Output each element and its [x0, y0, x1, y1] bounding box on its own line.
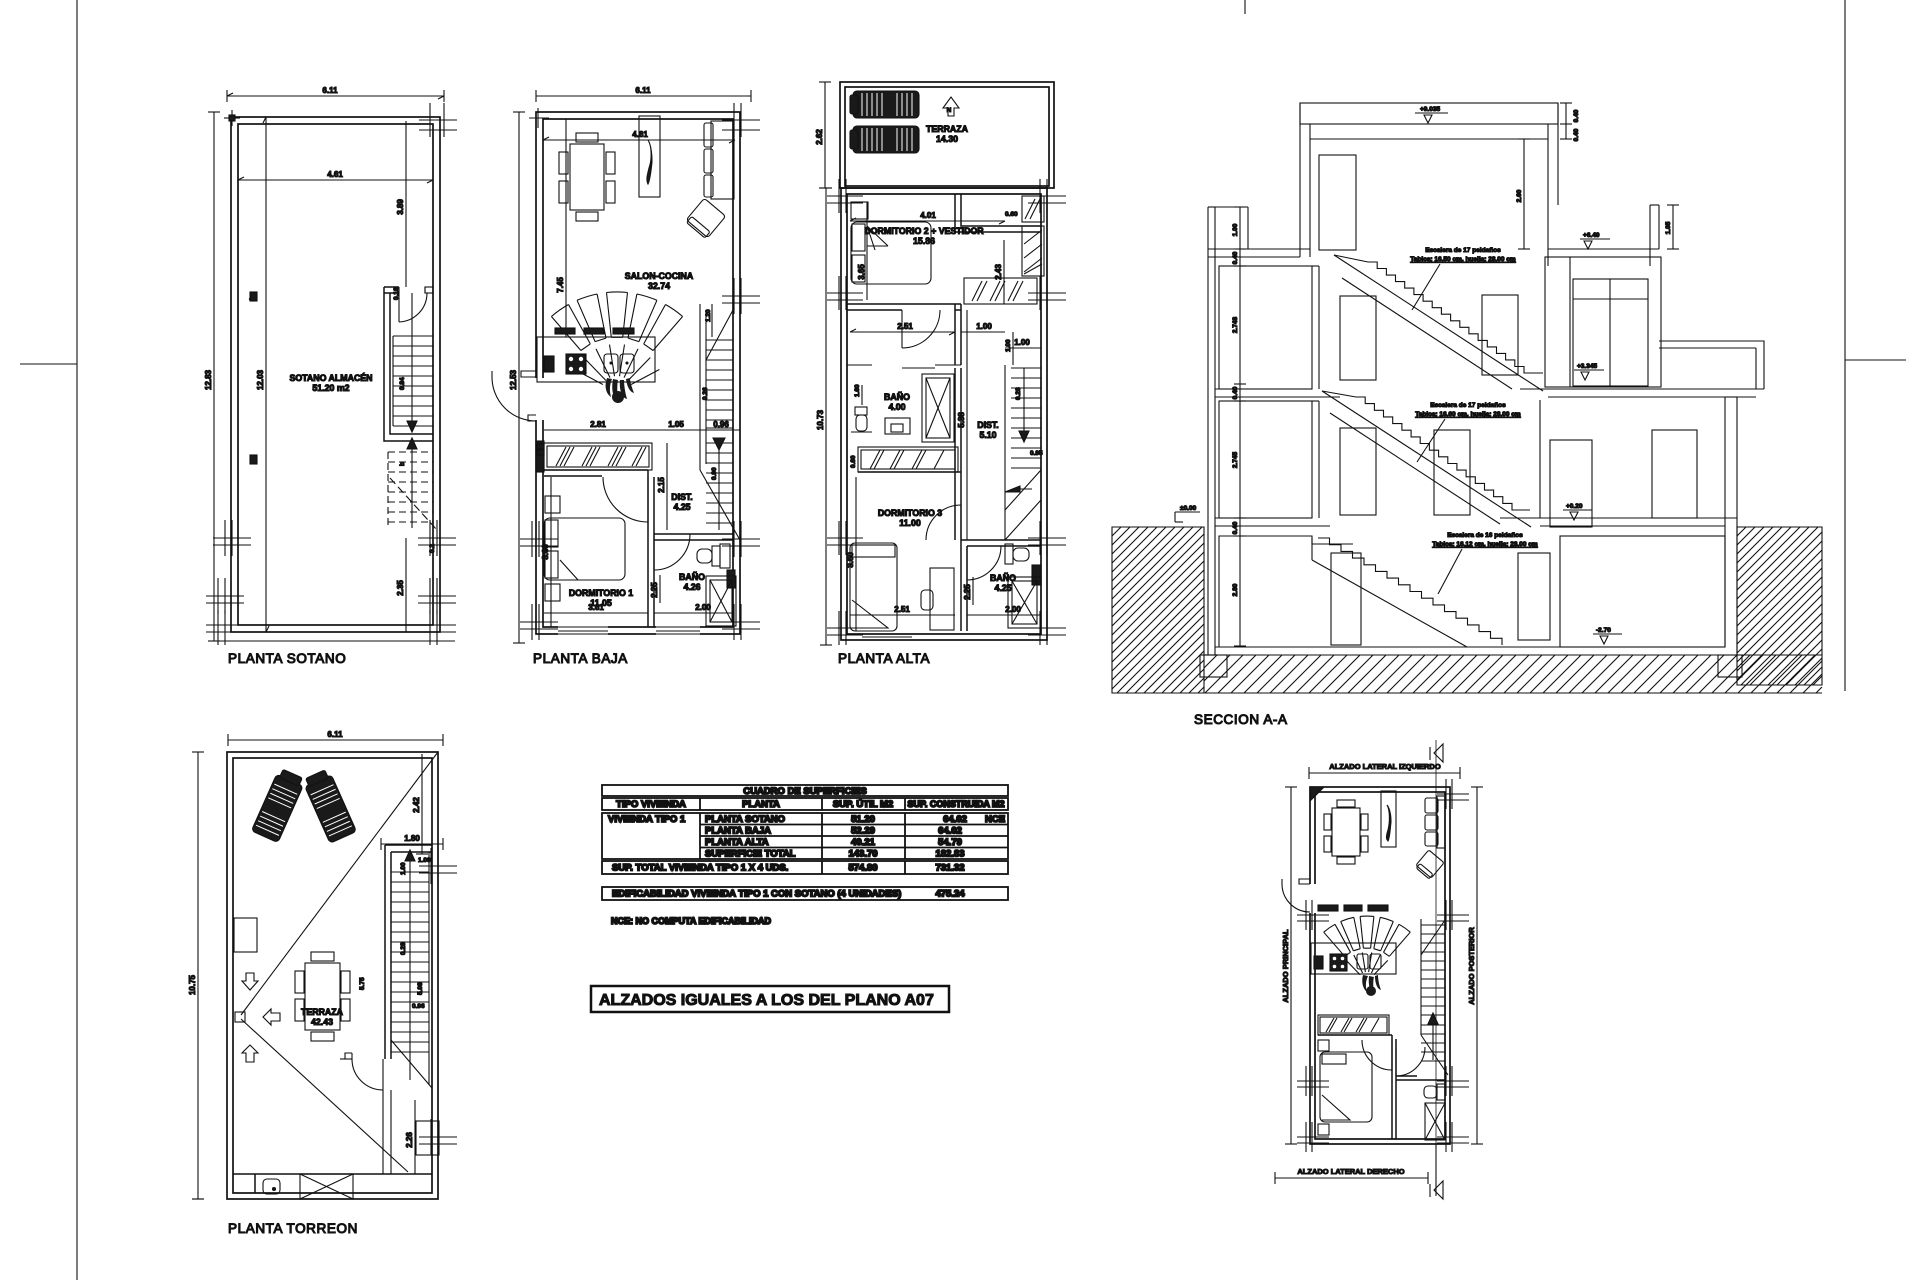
- svg-text:0.90: 0.90: [711, 467, 718, 480]
- svg-text:5.38: 5.38: [957, 412, 966, 428]
- svg-text:2.25: 2.25: [963, 584, 972, 600]
- svg-text:15.86: 15.86: [913, 236, 935, 246]
- svg-text:475.24: 475.24: [935, 889, 965, 900]
- svg-text:10.75: 10.75: [188, 974, 197, 995]
- svg-text:DIST.: DIST.: [671, 492, 693, 502]
- svg-text:1.00: 1.00: [976, 322, 992, 331]
- svg-text:32.74: 32.74: [648, 281, 670, 291]
- svg-text:DORMITORIO 3: DORMITORIO 3: [878, 508, 942, 518]
- svg-text:2.26: 2.26: [405, 1132, 414, 1148]
- svg-text:4.61: 4.61: [632, 130, 648, 139]
- svg-text:-2.70: -2.70: [1596, 627, 1611, 634]
- svg-text:731.32: 731.32: [935, 863, 964, 874]
- svg-text:64.02: 64.02: [938, 826, 962, 837]
- svg-text:6.11: 6.11: [322, 86, 338, 95]
- svg-text:PLANTA SOTANO: PLANTA SOTANO: [228, 651, 346, 666]
- svg-text:TERRAZA: TERRAZA: [301, 1007, 344, 1017]
- svg-text:1.00: 1.00: [1014, 338, 1030, 347]
- svg-text:0.40: 0.40: [1232, 521, 1239, 534]
- svg-text:SUP. TOTAL VIVIENDA TIPO 1 X 4: SUP. TOTAL VIVIENDA TIPO 1 X 4 UDS.: [612, 863, 788, 874]
- svg-text:2.51: 2.51: [897, 322, 913, 331]
- svg-text:6.11: 6.11: [327, 730, 343, 739]
- svg-text:2.745: 2.745: [1232, 451, 1239, 468]
- svg-text:Escalera de 16 peldaños: Escalera de 16 peldaños: [1447, 532, 1523, 539]
- svg-text:5.75: 5.75: [359, 977, 366, 990]
- svg-text:2.00: 2.00: [1005, 605, 1021, 614]
- svg-text:12.83: 12.83: [204, 369, 213, 390]
- svg-text:CUADRO DE SUPERFICIES: CUADRO DE SUPERFICIES: [743, 786, 867, 797]
- svg-text:SALON-COCINA: SALON-COCINA: [625, 271, 694, 281]
- svg-text:1.00: 1.00: [1232, 223, 1239, 236]
- svg-text:NCE: NO COMPUTA EDIFICABILIDA: NCE: NO COMPUTA EDIFICABILIDAD: [611, 916, 771, 926]
- svg-text:52.29: 52.29: [851, 826, 875, 837]
- svg-text:DORMITORIO 1: DORMITORIO 1: [569, 588, 633, 598]
- svg-text:ALZADOS IGUALES A LOS DEL PLAN: ALZADOS IGUALES A LOS DEL PLANO A07: [599, 992, 934, 1009]
- svg-text:Escalera de 17 peldaños: Escalera de 17 peldaños: [1425, 247, 1501, 254]
- svg-text:ALZADO LATERAL IZQUIERDO: ALZADO LATERAL IZQUIERDO: [1329, 762, 1441, 771]
- svg-text:PLANTA BAJA: PLANTA BAJA: [533, 651, 628, 666]
- svg-text:0.2: 0.2: [429, 544, 436, 553]
- svg-text:1.05: 1.05: [668, 420, 684, 429]
- svg-text:51.20 m2: 51.20 m2: [312, 383, 349, 393]
- svg-text:0.40: 0.40: [1232, 251, 1239, 264]
- svg-text:DIST.: DIST.: [977, 420, 999, 430]
- svg-text:ALZADO POSTERIOR: ALZADO POSTERIOR: [1467, 927, 1476, 1005]
- svg-text:0.40: 0.40: [1573, 109, 1580, 122]
- svg-text:TIPO VIVIENDA: TIPO VIVIENDA: [616, 799, 686, 810]
- svg-text:2.81: 2.81: [590, 420, 606, 429]
- svg-text:54.79: 54.79: [938, 837, 962, 848]
- svg-text:0.28: 0.28: [1015, 387, 1022, 400]
- svg-text:3.61: 3.61: [588, 603, 604, 612]
- svg-text:Escalera de 17 peldaños: Escalera de 17 peldaños: [1430, 402, 1506, 409]
- svg-text:4.26: 4.26: [683, 582, 700, 592]
- svg-text:2.62: 2.62: [815, 129, 824, 145]
- svg-text:PLANTA SOTANO: PLANTA SOTANO: [705, 814, 785, 825]
- svg-text:12.53: 12.53: [509, 369, 518, 390]
- svg-text:±0.00: ±0.00: [1180, 505, 1197, 512]
- svg-text:1.00: 1.00: [1005, 339, 1012, 352]
- svg-text:10.73: 10.73: [816, 409, 825, 430]
- svg-text:BAÑO: BAÑO: [884, 392, 910, 402]
- svg-text:EDIFICABILIDAD VIVIENDA TIPO 1: EDIFICABILIDAD VIVIENDA TIPO 1 CON SOTAN…: [612, 889, 901, 900]
- svg-text:4.61: 4.61: [327, 170, 343, 179]
- svg-text:1.05: 1.05: [1665, 221, 1672, 234]
- svg-text:2.80: 2.80: [1232, 583, 1239, 596]
- svg-text:SUP. CONSTRUIDA M2: SUP. CONSTRUIDA M2: [907, 799, 1004, 809]
- svg-text:0.40: 0.40: [1573, 128, 1580, 141]
- svg-text:0.84: 0.84: [399, 377, 406, 390]
- svg-text:40.21: 40.21: [851, 837, 875, 848]
- svg-text:2.25: 2.25: [650, 582, 659, 598]
- svg-text:14.30: 14.30: [936, 134, 958, 144]
- svg-text:143.70: 143.70: [848, 849, 877, 860]
- svg-text:4.01: 4.01: [920, 211, 936, 220]
- svg-text:1.60: 1.60: [854, 384, 861, 397]
- svg-text:0.96: 0.96: [713, 420, 729, 429]
- svg-text:PLANTA ALTA: PLANTA ALTA: [705, 837, 769, 848]
- svg-text:0.28: 0.28: [400, 942, 407, 955]
- svg-text:Tabica: 16,12 cm, huella: 28,0: Tabica: 16,12 cm, huella: 28,00 cm: [1432, 541, 1538, 548]
- svg-text:N: N: [947, 107, 952, 114]
- svg-text:2.42: 2.42: [412, 797, 421, 813]
- svg-text:51.20: 51.20: [851, 814, 875, 825]
- svg-text:5.08: 5.08: [417, 982, 424, 995]
- svg-text:0.26: 0.26: [702, 387, 709, 400]
- svg-text:4.00: 4.00: [888, 402, 905, 412]
- svg-text:PLANTA BAJA: PLANTA BAJA: [705, 826, 771, 837]
- svg-text:2.51: 2.51: [894, 605, 910, 614]
- svg-text:DORMITORIO 2 + VESTIDOR: DORMITORIO 2 + VESTIDOR: [864, 226, 984, 236]
- svg-text:Tabica: 16,60 cm, huella: 28,0: Tabica: 16,60 cm, huella: 28,00 cm: [1415, 411, 1521, 418]
- svg-text:4.25: 4.25: [994, 583, 1011, 593]
- svg-text:VIVIENDA TIPO 1: VIVIENDA TIPO 1: [608, 814, 686, 825]
- svg-text:+6.49: +6.49: [1583, 232, 1600, 239]
- svg-text:b: b: [399, 462, 406, 466]
- svg-text:1.80: 1.80: [404, 834, 420, 843]
- svg-text:3.65: 3.65: [857, 264, 866, 280]
- svg-text:0.16: 0.16: [393, 287, 400, 300]
- svg-text:0.60: 0.60: [850, 455, 857, 468]
- svg-text:2.60: 2.60: [1516, 189, 1523, 202]
- svg-text:SECCION A-A: SECCION A-A: [1194, 712, 1288, 727]
- svg-text:+0.20: +0.20: [1566, 503, 1583, 510]
- svg-text:6.11: 6.11: [635, 86, 651, 95]
- svg-text:0.95: 0.95: [1030, 450, 1043, 457]
- svg-text:2.43: 2.43: [994, 264, 1003, 280]
- svg-text:BAÑO: BAÑO: [679, 572, 705, 582]
- svg-text:182.83: 182.83: [935, 849, 964, 860]
- svg-text:TERRAZA: TERRAZA: [926, 124, 969, 134]
- svg-text:Tabica: 16,50 cm, huella: 28,0: Tabica: 16,50 cm, huella: 28,00 cm: [1410, 256, 1516, 263]
- svg-text:2.35: 2.35: [396, 580, 405, 596]
- svg-text:1.00: 1.00: [418, 857, 431, 864]
- svg-text:2.00: 2.00: [695, 603, 711, 612]
- svg-text:PLANTA TORREON: PLANTA TORREON: [228, 1221, 358, 1236]
- svg-text:5.10: 5.10: [979, 430, 996, 440]
- svg-text:3.89: 3.89: [396, 199, 405, 215]
- svg-text:574.80: 574.80: [848, 863, 877, 874]
- svg-text:3.60: 3.60: [846, 552, 855, 568]
- svg-text:ALZADO PRINCIPAL: ALZADO PRINCIPAL: [1281, 929, 1290, 1003]
- svg-text:0.96: 0.96: [412, 1003, 425, 1010]
- svg-text:PLANTA: PLANTA: [742, 799, 780, 810]
- svg-text:12.03: 12.03: [256, 369, 265, 390]
- svg-text:SUPERFICIE TOTAL: SUPERFICIE TOTAL: [705, 849, 796, 860]
- svg-text:0.60: 0.60: [1005, 211, 1018, 218]
- svg-text:2.748: 2.748: [1232, 316, 1239, 333]
- svg-text:42.43: 42.43: [311, 1017, 333, 1027]
- svg-text:64.02: 64.02: [943, 814, 967, 825]
- svg-text:SOTANO ALMACÉN: SOTANO ALMACÉN: [289, 373, 372, 383]
- svg-text:NCE: NCE: [985, 814, 1005, 825]
- svg-text:1.20: 1.20: [705, 309, 712, 322]
- svg-text:ALZADO LATERAL DERECHO: ALZADO LATERAL DERECHO: [1297, 1167, 1404, 1176]
- svg-text:2.15: 2.15: [657, 477, 666, 493]
- svg-text:+9.035: +9.035: [1420, 106, 1440, 113]
- svg-text:4.25: 4.25: [673, 502, 690, 512]
- svg-text:SUP. ÚTIL M2: SUP. ÚTIL M2: [833, 798, 893, 810]
- svg-text:7.45: 7.45: [556, 277, 565, 293]
- svg-text:11.00: 11.00: [899, 518, 921, 528]
- svg-text:PLANTA ALTA: PLANTA ALTA: [838, 651, 930, 666]
- svg-text:+3.345: +3.345: [1577, 363, 1597, 370]
- svg-text:1.00: 1.00: [400, 862, 407, 875]
